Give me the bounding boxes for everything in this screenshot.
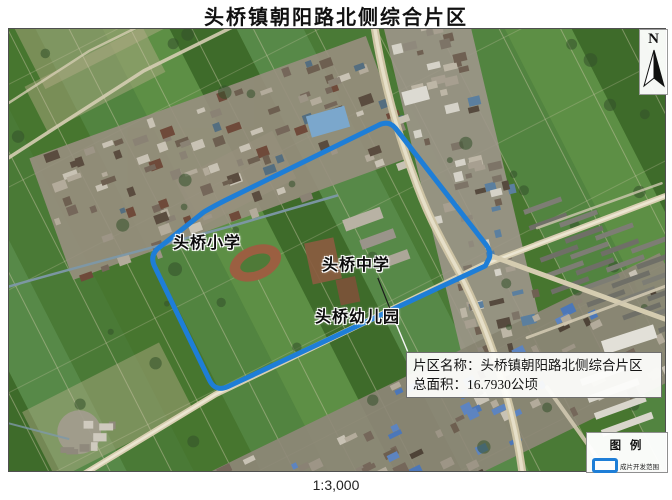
district-name-line: 片区名称：头桥镇朝阳路北侧综合片区	[413, 356, 655, 375]
label-kindergarten: 头桥幼儿园	[315, 303, 400, 327]
north-arrow: N	[639, 29, 668, 95]
legend-title: 图 例	[587, 437, 667, 453]
label-primary-school: 头桥小学	[173, 229, 241, 253]
satellite-imagery	[9, 29, 665, 471]
legend-item: 成片开发范围	[592, 458, 667, 473]
page-title: 头桥镇朝阳路北侧综合片区	[0, 1, 672, 30]
satellite-map	[8, 28, 666, 472]
boundary-swatch	[592, 458, 618, 473]
legend: 图 例 成片开发范围	[586, 432, 668, 473]
north-label: N	[640, 31, 667, 48]
legend-item-label: 成片开发范围	[620, 461, 659, 471]
north-needle-icon	[643, 48, 665, 90]
label-middle-school: 头桥中学	[322, 251, 390, 275]
district-info-box: 片区名称：头桥镇朝阳路北侧综合片区 总面积：16.7930公顷	[406, 352, 662, 398]
district-area-line: 总面积：16.7930公顷	[413, 375, 655, 394]
map-scale: 1:3,000	[0, 477, 672, 493]
map-sheet: 头桥镇朝阳路北侧综合片区	[0, 0, 672, 500]
